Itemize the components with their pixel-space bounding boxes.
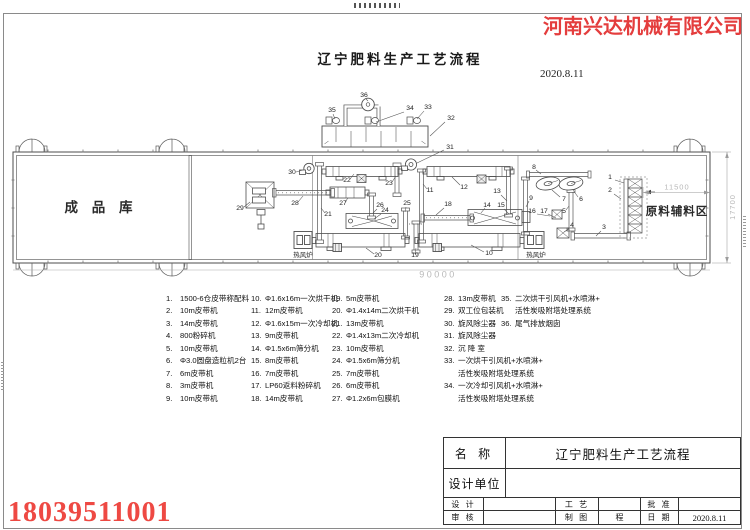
legend-item-number: 10.: [251, 293, 265, 305]
legend-item-text: 沉 降 室: [458, 344, 485, 353]
equip-label-13: 13: [493, 188, 501, 195]
settling-chamber: [322, 126, 428, 147]
legend-item-number: 8.: [166, 380, 180, 392]
equip-label-26: 26: [376, 202, 384, 209]
disc-granulators: [535, 175, 584, 192]
legend-item-number: 1.: [166, 293, 180, 305]
equip-label-31: 31: [446, 144, 454, 151]
drafter-value: 程: [599, 511, 641, 524]
leader-line-8: [536, 170, 541, 174]
equip-label-22: 22: [343, 177, 351, 184]
legend-item-text: LP60返料粉碎机: [265, 381, 321, 390]
legend-item-number: 7.: [166, 368, 180, 380]
equip-label-23: 23: [385, 180, 393, 187]
legend-item: 22.Φ1.4x13m二次冷却机: [332, 330, 419, 342]
furnace-label-1: 热风炉: [293, 250, 313, 259]
legend-item-text: 6m皮带机: [346, 381, 379, 390]
equip-label-30: 30: [288, 169, 296, 176]
legend-item-number: 3.: [166, 318, 180, 330]
legend-item-text: Φ1.5x6m筛分机: [265, 344, 319, 353]
legend-item-number: 28.: [444, 293, 458, 305]
equip-label-4: 4: [570, 222, 574, 229]
legend-column-3: 19.5m皮带机20.Φ1.4x14m二次烘干机21.13m皮带机22.Φ1.4…: [332, 293, 419, 405]
equip-label-21: 21: [324, 211, 332, 218]
equip-label-27: 27: [339, 200, 347, 207]
legend-column-5: 35.二次烘干引风机+水喷淋+活性炭吸附塔处理系统36.尾气排放烟囱: [501, 293, 600, 330]
legend-item: 5.10m皮带机: [166, 343, 249, 355]
legend-item-text: 8m皮带机: [265, 356, 298, 365]
legend-item: 32.沉 降 室: [444, 343, 543, 355]
legend-item: 33.一次烘干引风机+水喷淋+: [444, 355, 543, 367]
approve-label: 批 准: [641, 498, 679, 510]
legend-item-number: 26.: [332, 380, 346, 392]
legend-item-number: 25.: [332, 368, 346, 380]
raw-material-area-label: 原料辅料区: [646, 204, 709, 218]
legend-item-number: 33.: [444, 355, 458, 367]
legend-item: 14.Φ1.5x6m筛分机: [251, 343, 338, 355]
drawing-sheet: 河南兴达机械有限公司 辽宁肥料生产工艺流程 2020.8.11: [0, 0, 750, 530]
legend-item-number: 29.: [444, 305, 458, 317]
designer-label: 设 计: [444, 498, 484, 510]
legend-item-number: 27.: [332, 393, 346, 405]
equip-label-6: 6: [579, 196, 583, 203]
legend-item-text: 13m皮带机: [346, 319, 384, 328]
equip-label-5: 5: [562, 208, 566, 215]
legend-item: 34.一次冷却引风机+水喷淋+: [444, 380, 543, 392]
leader-line-7: [552, 190, 560, 197]
legend-item-number: 5.: [166, 343, 180, 355]
legend-item-text: 7m皮带机: [265, 369, 298, 378]
legend-item: 10.Φ1.6x16m一次烘干机: [251, 293, 338, 305]
legend-item-text: 尾气排放烟囱: [515, 319, 561, 328]
date-value: 2020.8.11: [679, 511, 740, 524]
legend-item-number: 31.: [444, 330, 458, 342]
equip-label-17: 17: [540, 208, 548, 215]
design-unit-label: 设计单位: [444, 469, 506, 497]
legend-item: 31.旋风除尘器: [444, 330, 543, 342]
legend-item-text: 10m皮带机: [180, 344, 218, 353]
checker-value: [484, 511, 556, 524]
equip-label-2: 2: [608, 187, 612, 194]
dim-total-length: 90000: [419, 270, 457, 280]
legend-item-text: 7m皮带机: [346, 369, 379, 378]
legend-item-number: 14.: [251, 343, 265, 355]
designer-value: [484, 498, 556, 510]
legend-item-text: Φ1.5x6m筛分机: [346, 356, 400, 365]
legend-item: 活性炭吸附塔处理系统: [444, 393, 543, 405]
chimney-symbol: [362, 98, 375, 111]
equip-label-18: 18: [444, 201, 452, 208]
drafter-label: 制 图: [556, 511, 599, 524]
legend-item: 9.10m皮带机: [166, 393, 249, 405]
legend-item-text: 1500-6仓皮带称配料: [180, 294, 249, 303]
legend-item: 21.13m皮带机: [332, 318, 419, 330]
leader-line-29: [244, 202, 250, 207]
legend-item-text: 一次烘干引风机+水喷淋+: [458, 356, 543, 365]
legend-item-number: 21.: [332, 318, 346, 330]
legend-item-number: 17.: [251, 380, 265, 392]
legend-item: 36.尾气排放烟囱: [501, 318, 600, 330]
legend-item-text: Φ1.6x15m一次冷却机: [265, 319, 338, 328]
legend-item-number: 30.: [444, 318, 458, 330]
legend-item: 2.10m皮带机: [166, 305, 249, 317]
name-label: 名 称: [444, 438, 506, 468]
process-value: [599, 498, 641, 510]
legend-item: 活性炭吸附塔处理系统: [444, 368, 543, 380]
legend-item-text: 10m皮带机: [180, 306, 218, 315]
design-unit-value: [506, 469, 740, 497]
legend-item: 23.10m皮带机: [332, 343, 419, 355]
equip-label-29: 29: [236, 205, 244, 212]
legend-item-text: Φ1.6x16m一次烘干机: [265, 294, 338, 303]
legend-item-text: 双工位包装机: [458, 306, 504, 315]
leader-line-4: [564, 229, 569, 232]
legend-item: 3.14m皮带机: [166, 318, 249, 330]
packing-machine: [246, 182, 274, 229]
legend-item-text: Φ1.2x6m包膜机: [346, 394, 400, 403]
equip-label-1: 1: [608, 174, 612, 181]
equip-label-9: 9: [529, 195, 533, 202]
legend-item-text: 14m皮带机: [265, 394, 303, 403]
leader-line-6: [573, 190, 578, 197]
legend-item: 15.8m皮带机: [251, 355, 338, 367]
equip-label-10: 10: [485, 250, 493, 257]
leader-line-20: [366, 248, 374, 254]
phone-number: 18039511001: [8, 497, 171, 529]
legend-item-text: 9m皮带机: [265, 331, 298, 340]
equip-label-16: 16: [528, 208, 536, 215]
dim-raw-area-width: 11500: [664, 183, 689, 192]
legend-item-number: 36.: [501, 318, 515, 330]
approve-value: [679, 498, 740, 510]
legend-item-text: 13m皮带机: [458, 294, 496, 303]
legend-item-number: 18.: [251, 393, 265, 405]
legend-item-number: 4.: [166, 330, 180, 342]
legend-item-text: 6m皮带机: [180, 369, 213, 378]
legend-item-number: 13.: [251, 330, 265, 342]
checker-label: 审 核: [444, 511, 484, 524]
legend-item-text: 5m皮带机: [346, 294, 379, 303]
equip-label-19: 19: [411, 252, 419, 259]
legend-item-text: 旋风除尘器: [458, 319, 496, 328]
equip-label-34: 34: [406, 105, 414, 112]
equip-label-28: 28: [291, 200, 299, 207]
legend-item-number: 16.: [251, 368, 265, 380]
leader-line-24: [374, 214, 381, 219]
legend-item-text: 3m皮带机: [180, 381, 213, 390]
legend-item: 26.6m皮带机: [332, 380, 419, 392]
equip-label-35: 35: [328, 107, 336, 114]
legend-item-number: 15.: [251, 355, 265, 367]
legend-item: 20.Φ1.4x14m二次烘干机: [332, 305, 419, 317]
legend-item-text: Φ1.4x14m二次烘干机: [346, 306, 419, 315]
legend-item: 24.Φ1.5x6m筛分机: [332, 355, 419, 367]
legend-item: 17.LP60返料粉碎机: [251, 380, 338, 392]
legend-item: 7.6m皮带机: [166, 368, 249, 380]
legend-item: 11.12m皮带机: [251, 305, 338, 317]
legend-item-number: 35.: [501, 293, 515, 305]
legend-item-number: 20.: [332, 305, 346, 317]
name-value: 辽宁肥料生产工艺流程: [506, 438, 740, 468]
legend-item-text: 一次冷却引风机+水喷淋+: [458, 381, 543, 390]
legend-item-text: 二次烘干引风机+水喷淋+: [515, 294, 600, 303]
legend-column-2: 10.Φ1.6x16m一次烘干机11.12m皮带机12.Φ1.6x15m一次冷却…: [251, 293, 338, 405]
equip-label-32: 32: [447, 115, 455, 122]
furnace-label-2: 热风炉: [526, 250, 546, 259]
legend-item: 6.Φ3.0圆盘造粒机2台: [166, 355, 249, 367]
legend-item-text: 800粉碎机: [180, 331, 215, 340]
legend-item: 1.1500-6仓皮带称配料: [166, 293, 249, 305]
legend-item: 27.Φ1.2x6m包膜机: [332, 393, 419, 405]
dim-building-depth: 17700: [728, 194, 737, 220]
induced-draft-fans: [326, 117, 421, 124]
legend-item: 19.5m皮带机: [332, 293, 419, 305]
legend-item-number: 9.: [166, 393, 180, 405]
legend-item-text: Φ3.0圆盘造粒机2台: [180, 356, 246, 365]
legend-item: 35.二次烘干引风机+水喷淋+: [501, 293, 600, 305]
equip-label-12: 12: [460, 184, 468, 191]
legend-column-1: 1.1500-6仓皮带称配料2.10m皮带机3.14m皮带机4.800粉碎机5.…: [166, 293, 249, 405]
legend-item-number: 19.: [332, 293, 346, 305]
legend-item: 13.9m皮带机: [251, 330, 338, 342]
equipment-legend: 1.1500-6仓皮带称配料2.10m皮带机3.14m皮带机4.800粉碎机5.…: [0, 293, 750, 413]
legend-item-number: 32.: [444, 343, 458, 355]
legend-item-number: 11.: [251, 305, 265, 317]
equip-label-8: 8: [532, 164, 536, 171]
legend-item-text: 10m皮带机: [346, 344, 384, 353]
leader-line-33: [417, 111, 424, 119]
legend-item: 12.Φ1.6x15m一次冷却机: [251, 318, 338, 330]
leader-line-1: [615, 180, 624, 183]
legend-item-text: Φ1.4x13m二次冷却机: [346, 331, 419, 340]
legend-item-number: 23.: [332, 343, 346, 355]
legend-item-number: 2.: [166, 305, 180, 317]
legend-item-text: 12m皮带机: [265, 306, 303, 315]
leader-line-13: [501, 195, 507, 201]
legend-item-number: 12.: [251, 318, 265, 330]
equip-label-20: 20: [374, 252, 382, 259]
equip-label-15: 15: [497, 202, 505, 209]
leader-line-12: [452, 177, 460, 185]
legend-item-number: 34.: [444, 380, 458, 392]
equip-label-14: 14: [483, 202, 491, 209]
date-label: 日 期: [641, 511, 679, 524]
legend-item-text: 10m皮带机: [180, 394, 218, 403]
equip-label-33: 33: [424, 104, 432, 111]
leader-line-32: [430, 122, 445, 136]
legend-item-number: 24.: [332, 355, 346, 367]
leader-line-18: [436, 208, 444, 215]
legend-item: 4.800粉碎机: [166, 330, 249, 342]
equip-label-36: 36: [360, 92, 368, 99]
legend-item-text: 旋风除尘器: [458, 331, 496, 340]
equip-label-3: 3: [602, 224, 606, 231]
legend-item-number: 6.: [166, 355, 180, 367]
process-label: 工 艺: [556, 498, 599, 510]
crushers: [552, 210, 569, 238]
finished-warehouse-label: 成 品 库: [64, 199, 137, 215]
title-block: 名 称 辽宁肥料生产工艺流程 设计单位 设 计 工 艺 批 准 审 核 制 图 …: [443, 437, 741, 525]
equip-label-25: 25: [403, 200, 411, 207]
equip-label-7: 7: [562, 196, 566, 203]
legend-item: 活性炭吸附塔处理系统: [501, 305, 600, 317]
legend-item: 8.3m皮带机: [166, 380, 249, 392]
equip-label-11: 11: [426, 187, 433, 194]
leader-line-5: [566, 206, 569, 210]
legend-item: 25.7m皮带机: [332, 368, 419, 380]
leader-line-10: [471, 245, 484, 252]
legend-item: 18.14m皮带机: [251, 393, 338, 405]
legend-item: 16.7m皮带机: [251, 368, 338, 380]
legend-item-number: 22.: [332, 330, 346, 342]
legend-item-text: 14m皮带机: [180, 319, 218, 328]
